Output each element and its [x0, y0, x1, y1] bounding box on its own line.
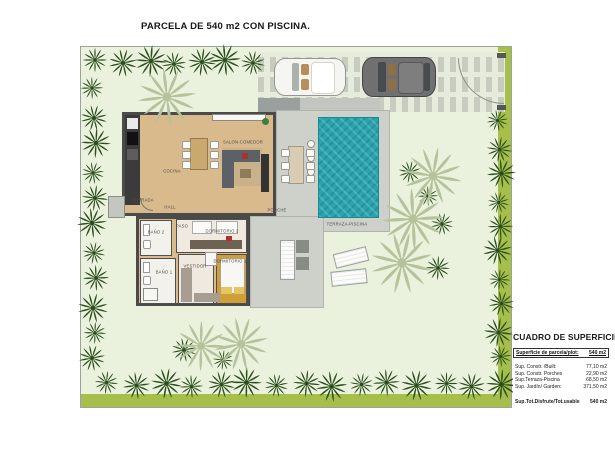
- side-table: [296, 257, 309, 270]
- desk: [190, 240, 242, 249]
- car-seat: [388, 64, 396, 75]
- room-label-cocina: COCINA: [163, 169, 181, 174]
- car-seat: [388, 79, 396, 90]
- surface-table-header-row: Superficie de parcela/plot: 540 m2: [513, 348, 609, 358]
- entrance-step: [108, 196, 125, 218]
- room-label-dormitorio2: DORMITORIO 2: [205, 229, 238, 234]
- table-row: Sup. Jardín/ Garden: 371,50 m2: [513, 384, 609, 391]
- fridge-icon: [127, 118, 138, 129]
- plant-icon: [262, 118, 269, 125]
- area-label-terraza-piscina: TERRAZA-PISCINA: [327, 222, 368, 227]
- gate-post: [497, 105, 506, 110]
- stove-icon: [127, 132, 138, 145]
- car-roof: [311, 62, 335, 94]
- page-title: PARCELA DE 540 m2 CON PISCINA.: [141, 21, 310, 32]
- shower-icon: [143, 288, 158, 301]
- room-label-dormitorio1: DORMITORIO 1: [213, 259, 246, 264]
- swimming-pool: [318, 117, 379, 218]
- toilet-icon: [143, 276, 151, 285]
- car-roof: [398, 62, 424, 94]
- room-label-entrada: ENTRADA: [132, 198, 153, 203]
- dark-car-icon: [362, 57, 436, 97]
- car-windshield: [378, 62, 386, 92]
- sink-icon: [143, 262, 150, 273]
- row-label: Sup. Jardín/ Garden:: [515, 384, 561, 391]
- car-rear-window: [424, 63, 430, 91]
- sofa: [222, 150, 260, 162]
- room-label-hall: HALL: [164, 205, 175, 210]
- total-label: Sup.Tot.Disfrute/Tot.usable: [515, 399, 580, 406]
- sun-lounger: [280, 240, 295, 280]
- car-windshield: [292, 63, 299, 91]
- toilet-icon: [143, 240, 151, 249]
- closet: [181, 268, 192, 302]
- room-label-vestidor: VESTIDOR: [183, 264, 206, 269]
- closet: [194, 293, 220, 302]
- car-seat: [301, 79, 309, 90]
- total-value: 540 m2: [590, 399, 607, 406]
- surface-table-title: CUADRO DE SUPERFICIE: [513, 332, 615, 342]
- header-value: 540 m2: [589, 350, 606, 356]
- pillow: [234, 287, 244, 294]
- white-car-icon: [274, 58, 346, 96]
- pool-step-dot: [307, 140, 315, 148]
- coffee-table: [240, 169, 251, 178]
- table-total-row: Sup.Tot.Disfrute/Tot.usable 540 m2: [513, 399, 609, 406]
- side-table: [296, 240, 309, 253]
- sideboard: [212, 114, 266, 121]
- chair-red: [226, 236, 232, 241]
- room-label-paso: PASO: [176, 224, 188, 229]
- room-label-bano2: BAÑO 2: [148, 230, 165, 235]
- room-label-salon-comedor: SALON-COMEDOR: [223, 140, 263, 145]
- car-seat: [301, 64, 309, 75]
- lawn-strip-bottom: [81, 394, 511, 407]
- dining-table: [190, 138, 208, 170]
- site-plan-canvas: PARCELA DE 540 m2 CON PISCINA.: [0, 0, 615, 454]
- area-label-porche: PORCHE: [267, 208, 286, 213]
- pillow: [221, 287, 232, 294]
- header-label: Superficie de parcela/plot:: [516, 350, 579, 356]
- surface-table: CUADRO DE SUPERFICIE Superficie de parce…: [513, 330, 615, 406]
- cushion: [242, 153, 248, 159]
- outdoor-table: [288, 146, 304, 184]
- sofa-chaise: [222, 162, 234, 188]
- tv-unit: [261, 154, 269, 192]
- sink-icon: [127, 149, 138, 160]
- row-value: 371,50 m2: [583, 384, 607, 391]
- room-label-bano1: BAÑO 1: [156, 270, 173, 275]
